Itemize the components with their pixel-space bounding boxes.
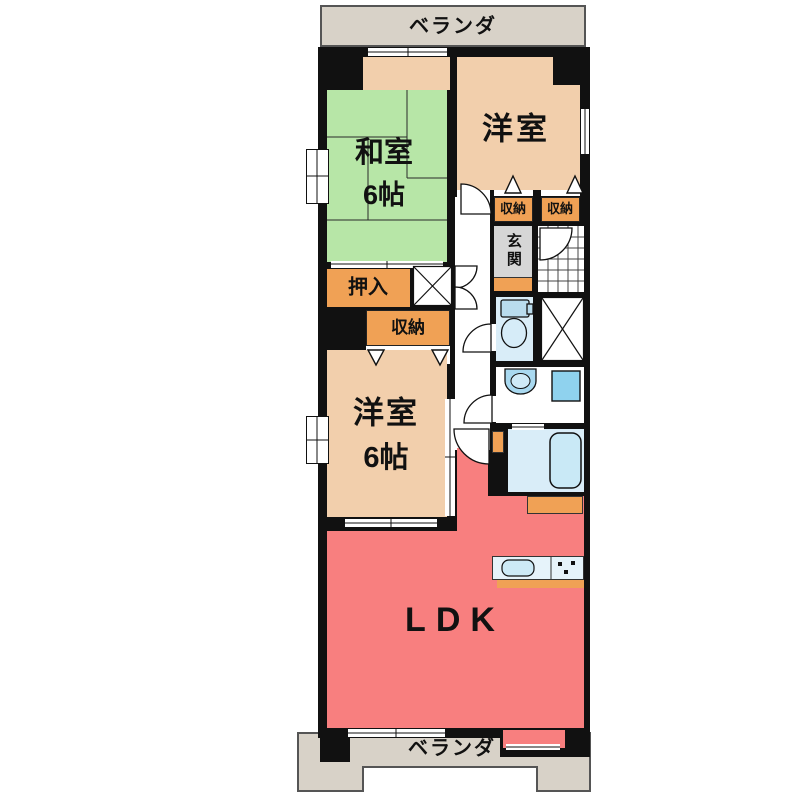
yoshitsu-upper-right-window <box>581 109 589 154</box>
balcony-bottom-label: ベランダ <box>408 739 496 760</box>
storage-upper-right-label: 収納 <box>547 202 573 216</box>
kitchen-counter <box>492 556 584 580</box>
yoshitsu-lower-sliding-door-bottom <box>345 519 437 527</box>
toilet-door-gap <box>490 324 496 351</box>
hallway-floor <box>455 197 490 450</box>
storage-middle-label: 収納 <box>391 319 425 337</box>
washroom-floor <box>496 367 584 423</box>
washitsu-alcove-floor <box>363 57 450 90</box>
bathroom-floor <box>508 429 584 492</box>
ldk-label: LDK <box>405 603 505 639</box>
yoshitsu-upper-label: 洋室 <box>482 114 550 147</box>
elevator-shaft-box <box>541 297 584 361</box>
pipe-shaft-box <box>413 266 452 306</box>
washroom-door-gap <box>490 396 496 422</box>
washitsu-size-label: 6帖 <box>363 181 405 209</box>
washitsu-left-window <box>306 149 329 204</box>
threshold-storage-left <box>494 190 533 196</box>
floorplan-canvas: ベランダ 洋室 和室 6帖 収納 収納 玄関 押入 収納 洋室 6帖 LDK ベ… <box>0 0 800 800</box>
washitsu-label: 和室 <box>355 138 413 168</box>
balcony-top-label: ベランダ <box>409 17 497 38</box>
yoshitsu-lower-size-label: 6帖 <box>363 443 408 473</box>
threshold-storage-right <box>541 190 580 196</box>
ldk-bay-window <box>506 744 560 750</box>
storage-upper-left-label: 収納 <box>500 202 526 216</box>
stairwell-floor <box>538 226 584 292</box>
bathroom-sliding-door <box>512 424 544 430</box>
threshold-hall-yoshitsu <box>457 190 490 197</box>
kitchen-counter-base <box>497 580 584 588</box>
wall-block-bottom-left <box>320 738 350 762</box>
yoshitsu-lower-floor <box>327 350 447 517</box>
ldk-floor-upper-column <box>457 448 488 531</box>
genkan-label: 玄関 <box>505 233 521 269</box>
oshiire-label: 押入 <box>348 278 388 299</box>
toilet-floor <box>496 297 533 361</box>
ldk-entry-step <box>492 431 504 453</box>
wall-block-top-right <box>553 47 586 85</box>
ldk-bottom-window <box>348 729 445 737</box>
washitsu-top-window <box>368 48 447 56</box>
yoshitsu-lower-label: 洋室 <box>353 398 419 431</box>
kitchen-cabinet <box>527 496 583 514</box>
genkan-step <box>494 277 532 291</box>
yoshitsu-lower-left-window <box>306 416 329 464</box>
washitsu-floor <box>327 90 447 262</box>
yoshitsu-lower-sliding-door-right <box>445 399 455 516</box>
